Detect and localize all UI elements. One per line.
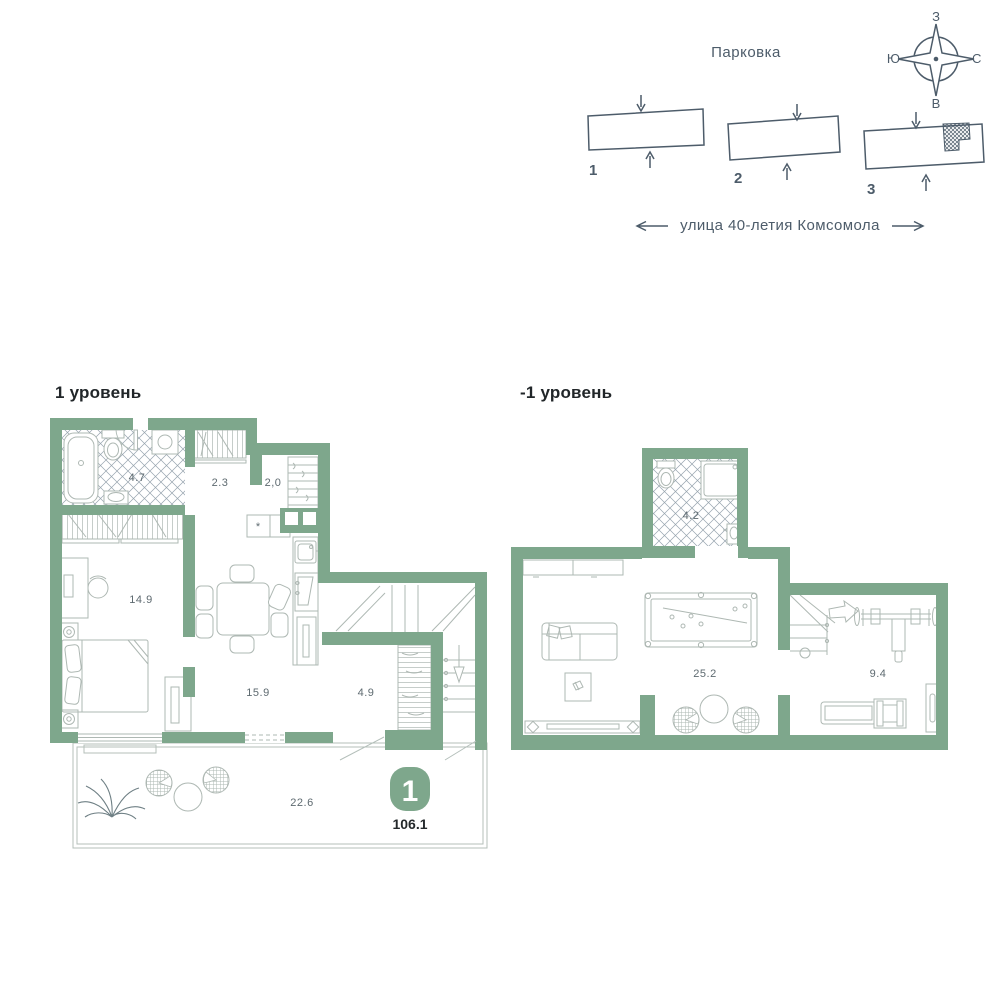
building-1: 1 <box>588 95 704 179</box>
level1-title: 1 уровень <box>55 383 141 403</box>
bed <box>62 640 148 712</box>
tv-console <box>525 721 640 733</box>
sofa <box>542 623 617 660</box>
shower-cabin <box>701 461 741 499</box>
room-label-gym: 9.4 <box>870 668 887 680</box>
compass-label-left: Ю <box>887 51 900 66</box>
level-minus1-title: -1 уровень <box>520 383 612 403</box>
billiard-table <box>645 592 757 647</box>
building-3: 3 <box>864 112 984 198</box>
apartment-number: 1 <box>402 775 419 808</box>
terrace-sliding-door <box>245 732 285 743</box>
bathroom-sink <box>104 491 128 504</box>
entrance-arrow-icon <box>783 164 791 180</box>
entrance-arrow-icon <box>922 175 930 191</box>
entrance-arrow-icon <box>637 95 645 111</box>
toilet <box>657 461 675 488</box>
washing-machine <box>152 430 178 454</box>
total-area-label: 106.1 <box>392 816 427 832</box>
room-label-hall: 4.9 <box>358 687 375 699</box>
room-label-hallway: 2.3 <box>212 477 229 489</box>
entrance-arrow-icon <box>793 104 801 120</box>
barbell-rack <box>855 608 938 663</box>
floor-plan-page: Парковка З С Ю В 1 2 <box>0 0 1000 1000</box>
wicker-chair <box>733 707 759 733</box>
building-2: 2 <box>728 104 840 187</box>
street-label: улица 40-летия Комсомола <box>680 217 880 234</box>
wicker-chair <box>203 767 229 793</box>
compass-center-dot <box>934 57 939 62</box>
room-label-lounge: 25.2 <box>693 668 716 680</box>
bedroom-wardrobe <box>58 512 183 543</box>
wicker-chair <box>673 707 699 733</box>
room-label-bathroom: 4.7 <box>129 472 146 484</box>
desk-chair <box>88 576 108 598</box>
stairs-up <box>790 595 858 658</box>
kitchen-counter <box>293 537 320 665</box>
apartment-number-badge: 1 106.1 <box>390 767 430 832</box>
level-minus1-floor-plan: 4.2 25.2 9.4 <box>505 420 965 760</box>
bathtub <box>64 433 98 503</box>
wall-speaker <box>60 623 78 641</box>
rug <box>565 673 591 701</box>
room-label-bedroom: 14.9 <box>129 594 152 606</box>
street-row: улица 40-летия Комсомола <box>612 217 948 234</box>
room-label-terrace: 22.6 <box>290 797 313 809</box>
toilet <box>102 430 124 460</box>
entrance-arrow-icon <box>646 152 654 168</box>
hall-wardrobe <box>398 645 431 730</box>
round-table <box>700 695 728 723</box>
coat-rack <box>192 430 246 463</box>
room-label-bathroom: 4.2 <box>683 510 700 522</box>
gym-bench <box>821 699 906 728</box>
terrace-door-swing <box>340 737 384 760</box>
dining-table <box>196 565 292 653</box>
street-arrow-left-icon <box>634 220 670 232</box>
room-label-closet: 2,0 <box>265 477 282 489</box>
compass-label-top: З <box>932 9 940 24</box>
room-label-kitchen-living: 15.9 <box>246 687 269 699</box>
stairs-up-arrow-icon <box>829 601 858 622</box>
street-arrow-right-icon <box>890 220 926 232</box>
hall-door-swing <box>445 741 476 760</box>
round-table <box>174 783 202 811</box>
fridge-symbol: * <box>256 521 261 533</box>
level1-floor-plan: * <box>40 405 500 860</box>
building-3-label: 3 <box>867 181 875 198</box>
compass-label-right: С <box>972 51 981 66</box>
entrance-arrow-icon <box>912 112 920 128</box>
desk <box>60 558 88 618</box>
building-2-label: 2 <box>734 170 742 187</box>
site-buildings-map: 1 2 3 <box>575 80 997 206</box>
wicker-chair <box>146 770 172 796</box>
bathroom-door-opening <box>695 546 738 559</box>
closet-shelves <box>288 457 318 510</box>
stairs-down-arrow-icon <box>454 667 464 682</box>
building-1-label: 1 <box>589 162 597 179</box>
bedroom-window <box>78 732 162 753</box>
sideboard <box>523 560 623 577</box>
parking-title: Парковка <box>690 44 802 61</box>
palm-plant <box>78 779 145 819</box>
wall-speaker <box>60 710 78 728</box>
